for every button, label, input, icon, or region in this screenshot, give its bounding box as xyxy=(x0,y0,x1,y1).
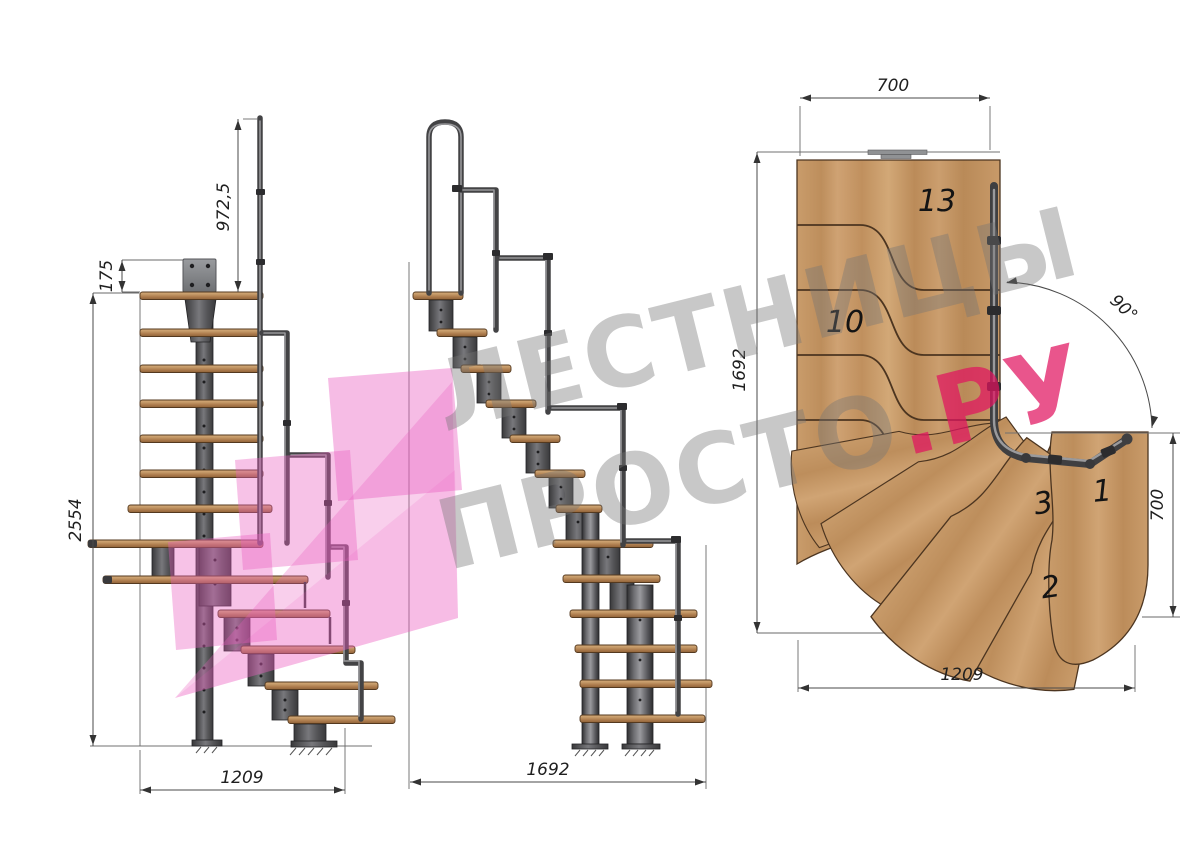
dim-label-total-height: 2554 xyxy=(66,498,86,541)
tread-1-plan xyxy=(1049,432,1148,664)
ground-hatch xyxy=(196,747,332,755)
dim-label-front-run: 1692 xyxy=(526,760,569,780)
step-number-1: 1 xyxy=(1091,473,1113,510)
dimension-front-run: 1692 xyxy=(410,760,706,786)
dim-label-plate-offset: 175 xyxy=(97,260,117,292)
dim-label-rail-height: 972,5 xyxy=(214,183,234,232)
dim-label-plan-top-width: 700 xyxy=(877,76,909,96)
wall-plate-mark xyxy=(868,150,927,155)
dimension-plate-offset: 175 xyxy=(97,260,183,292)
dim-label-turn-angle: 90° xyxy=(1106,291,1142,326)
dimension-plan-top-width: 700 xyxy=(800,76,990,156)
dim-label-plan-bottom-width: 1209 xyxy=(940,665,983,685)
dimension-rail-height: 972,5 xyxy=(214,119,258,292)
dim-label-plan-right-depth: 700 xyxy=(1148,489,1168,521)
column-foot xyxy=(192,740,222,746)
drawing-sheet: 972,5 175 2554 1209 xyxy=(0,0,1200,849)
ground-hatch xyxy=(575,750,654,756)
dimension-total-height: 2554 xyxy=(66,293,139,746)
wall-plate xyxy=(183,259,216,292)
staircase-technical-drawing: 972,5 175 2554 1209 xyxy=(0,0,1200,849)
dimension-plan-left-height: 1692 xyxy=(730,152,761,633)
dim-label-side-run: 1209 xyxy=(220,768,263,788)
